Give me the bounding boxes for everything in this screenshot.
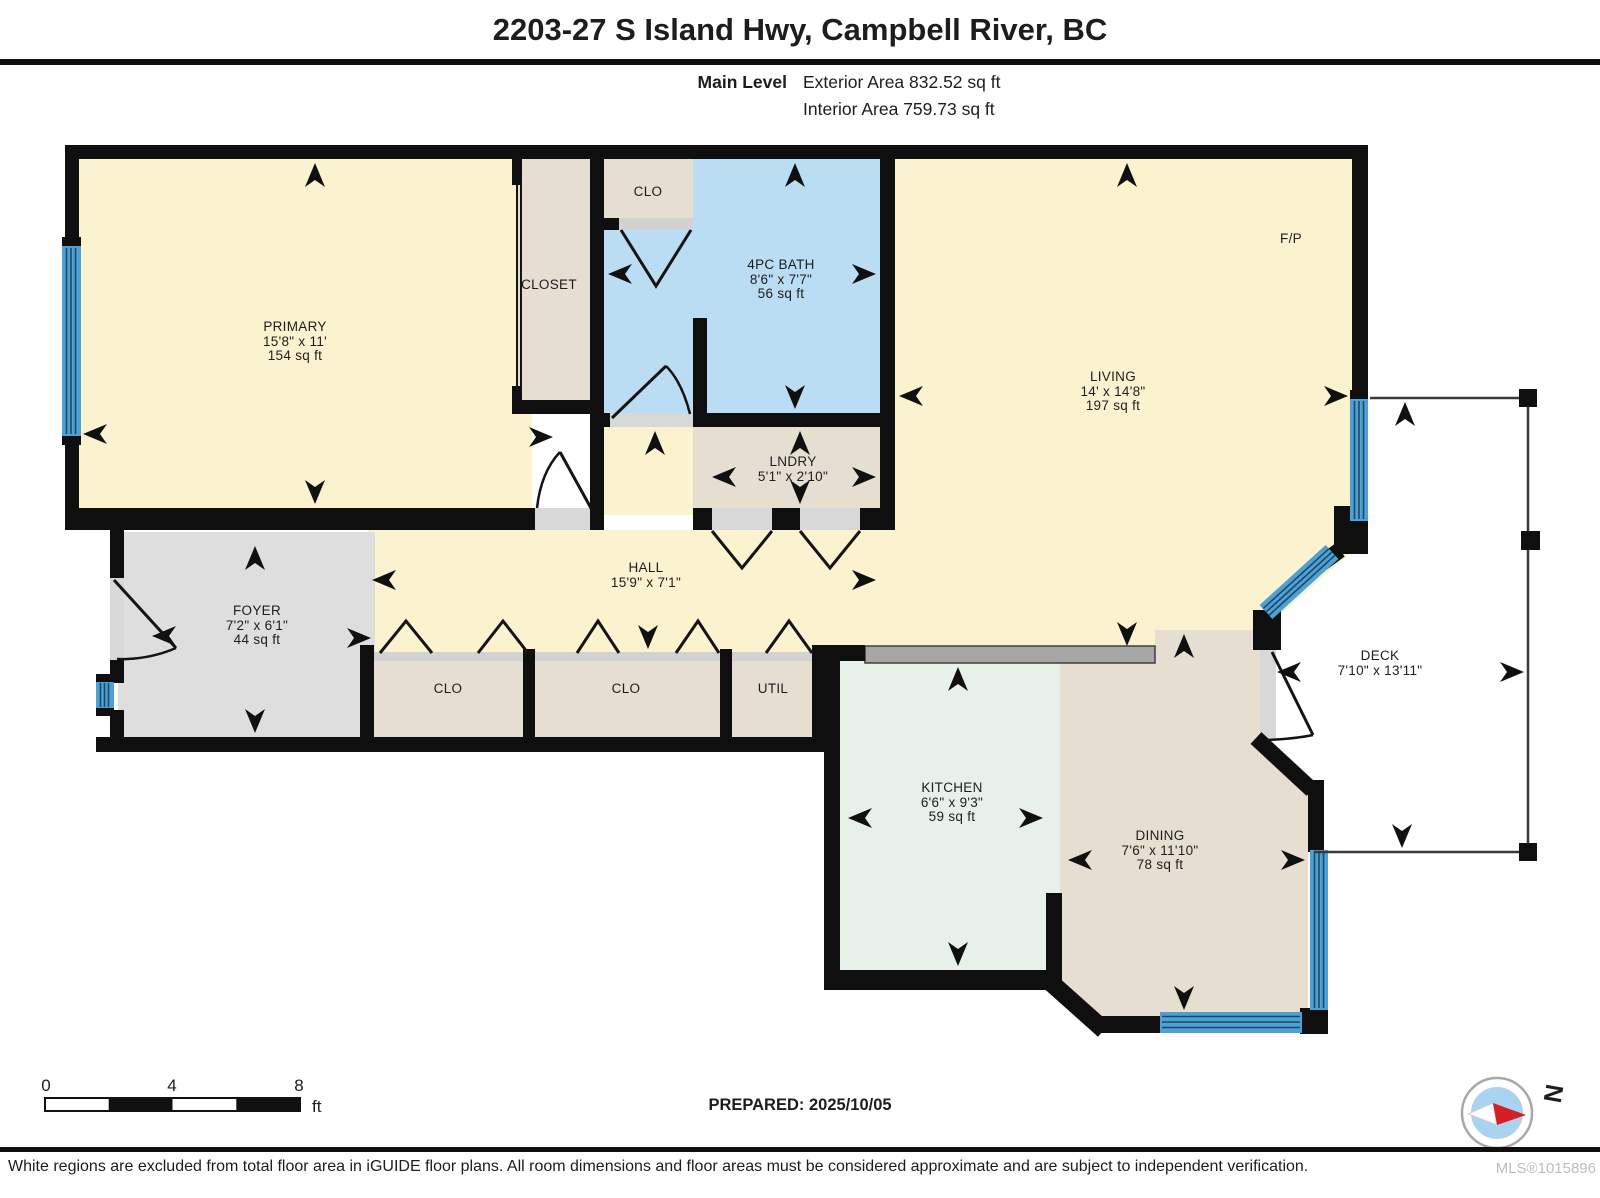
label-living-area: 197 sq ft — [1086, 398, 1141, 413]
label-clo2: CLO — [612, 681, 641, 696]
label-deck: DECK — [1361, 648, 1400, 663]
door-primary — [537, 452, 592, 510]
scale-bar: 0 4 8 ft — [41, 1076, 321, 1116]
label-primary: PRIMARY — [263, 319, 326, 334]
deck-post — [1521, 531, 1540, 550]
label-kitchen: KITCHEN — [921, 780, 982, 795]
label-bath-dims: 8'6" x 7'7" — [750, 272, 812, 287]
floorplan-page: 2203-27 S Island Hwy, Campbell River, BC… — [0, 0, 1600, 1198]
compass-north-label: N — [1538, 1082, 1569, 1105]
label-bath-area: 56 sq ft — [758, 286, 805, 301]
scale-tick-8: 8 — [294, 1076, 303, 1095]
mls-number: MLS®1015896 — [1496, 1160, 1596, 1177]
window-foyer-left — [96, 682, 114, 708]
prepared-date: PREPARED: 2025/10/05 — [708, 1096, 891, 1114]
label-util: UTIL — [758, 681, 789, 696]
label-primary-area: 154 sq ft — [268, 348, 323, 363]
header: 2203-27 S Island Hwy, Campbell River, BC… — [0, 12, 1600, 119]
label-lndry: LNDRY — [769, 454, 816, 469]
window-living-right — [1350, 399, 1368, 521]
label-dining: DINING — [1135, 828, 1184, 843]
label-dining-dims: 7'6" x 11'10" — [1122, 843, 1199, 858]
label-deck-dims: 7'10" x 13'11" — [1338, 663, 1423, 678]
page-title: 2203-27 S Island Hwy, Campbell River, BC — [493, 12, 1108, 47]
kitchen-counter — [865, 646, 1155, 663]
label-closet: CLOSET — [521, 277, 577, 292]
room-fills — [72, 152, 1365, 1018]
scale-unit: ft — [312, 1097, 322, 1116]
window-primary-left — [62, 246, 81, 436]
exterior-area: Exterior Area 832.52 sq ft — [803, 72, 1001, 92]
label-hall: HALL — [629, 560, 664, 575]
label-foyer: FOYER — [233, 603, 281, 618]
disclaimer-text: White regions are excluded from total fl… — [8, 1158, 1308, 1175]
label-foyer-dims: 7'2" x 6'1" — [226, 618, 288, 633]
footer-rule — [0, 1147, 1600, 1152]
label-clo-top: CLO — [634, 184, 663, 199]
label-kitchen-dims: 6'6" x 9'3" — [921, 795, 983, 810]
label-clo1: CLO — [434, 681, 463, 696]
window-dining-bottom — [1160, 1012, 1302, 1033]
scale-tick-0: 0 — [41, 1076, 50, 1095]
deck-post — [1519, 843, 1537, 861]
label-dining-area: 78 sq ft — [1137, 857, 1184, 872]
label-hall-dims: 15'9" x 7'1" — [611, 575, 681, 590]
label-primary-dims: 15'8" x 11' — [263, 334, 327, 349]
label-living: LIVING — [1090, 369, 1136, 384]
header-rule — [0, 59, 1600, 65]
label-living-dims: 14' x 14'8" — [1080, 384, 1145, 399]
window-dining-right — [1310, 850, 1328, 1010]
label-fireplace: F/P — [1280, 231, 1302, 246]
label-kitchen-area: 59 sq ft — [929, 809, 976, 824]
label-lndry-dims: 5'1" x 2'10" — [758, 469, 828, 484]
label-foyer-area: 44 sq ft — [234, 632, 281, 647]
hall-nook — [604, 427, 693, 515]
compass-icon: N — [1462, 1078, 1568, 1148]
scale-tick-4: 4 — [167, 1076, 176, 1095]
label-bath: 4PC BATH — [747, 257, 814, 272]
level-label: Main Level — [698, 72, 787, 92]
deck-post — [1519, 389, 1537, 407]
interior-area: Interior Area 759.73 sq ft — [803, 99, 995, 119]
floorplan-canvas: 2203-27 S Island Hwy, Campbell River, BC… — [0, 0, 1600, 1198]
